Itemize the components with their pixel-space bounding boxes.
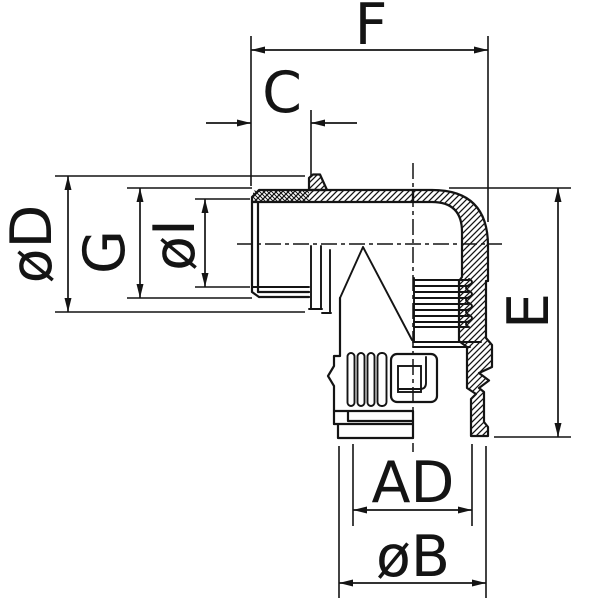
dimension-f-label: F	[355, 0, 388, 58]
dimension-i-label: øI	[142, 219, 208, 271]
dimension-ad: AD	[353, 444, 472, 526]
dimension-c: C	[206, 60, 357, 176]
dimension-g-label: G	[72, 230, 138, 274]
elbow-fitting-drawing: F C øD G øI E AD øB	[0, 0, 600, 600]
lower-body-left-edge	[328, 298, 340, 424]
dimension-b-label: øB	[376, 524, 450, 590]
bottom-flange	[334, 411, 413, 438]
flange-tab-section	[309, 175, 327, 191]
thread-end	[252, 202, 309, 297]
dimension-i: øI	[142, 199, 250, 287]
technical-drawing-canvas: F C øD G øI E AD øB	[0, 0, 600, 600]
thread-section-texture	[253, 191, 309, 202]
elbow-and-nut-section	[413, 190, 492, 436]
fitting-body	[237, 163, 502, 452]
grip-ribs	[348, 353, 387, 406]
dimension-e-label: E	[496, 293, 562, 329]
clamp-bracket	[391, 354, 437, 402]
dimension-d-label: øD	[0, 205, 65, 284]
flange-ring	[309, 246, 331, 313]
dimension-ad-label: AD	[372, 450, 455, 516]
internal-cone	[340, 247, 412, 340]
dimension-c-label: C	[262, 60, 302, 126]
